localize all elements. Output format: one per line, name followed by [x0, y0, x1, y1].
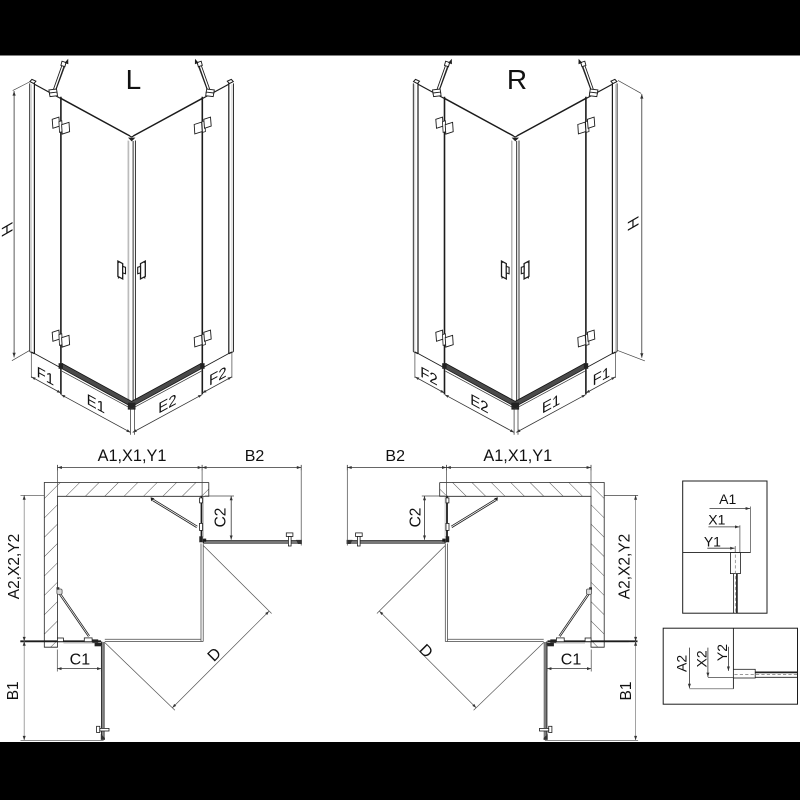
svg-text:Y2: Y2: [714, 644, 730, 661]
svg-text:R: R: [507, 64, 527, 95]
svg-text:B2: B2: [245, 448, 265, 465]
svg-text:C2: C2: [212, 508, 229, 528]
svg-text:B1: B1: [618, 682, 635, 701]
svg-text:B2: B2: [385, 448, 405, 465]
svg-text:Y1: Y1: [704, 534, 721, 550]
svg-text:L: L: [126, 64, 142, 95]
svg-text:A1,X1,Y1: A1,X1,Y1: [98, 447, 167, 465]
svg-text:C1: C1: [70, 651, 91, 668]
svg-text:A2: A2: [673, 655, 689, 672]
svg-text:X2: X2: [693, 650, 709, 667]
svg-text:B1: B1: [5, 681, 22, 700]
svg-text:C1: C1: [561, 651, 582, 668]
svg-text:X1: X1: [708, 512, 725, 528]
svg-text:A1: A1: [719, 491, 736, 507]
svg-text:C2: C2: [408, 508, 425, 528]
svg-text:A1,X1,Y1: A1,X1,Y1: [483, 447, 552, 465]
svg-text:A2,X2,Y2: A2,X2,Y2: [617, 534, 634, 600]
svg-text:A2,X2,Y2: A2,X2,Y2: [6, 534, 23, 600]
